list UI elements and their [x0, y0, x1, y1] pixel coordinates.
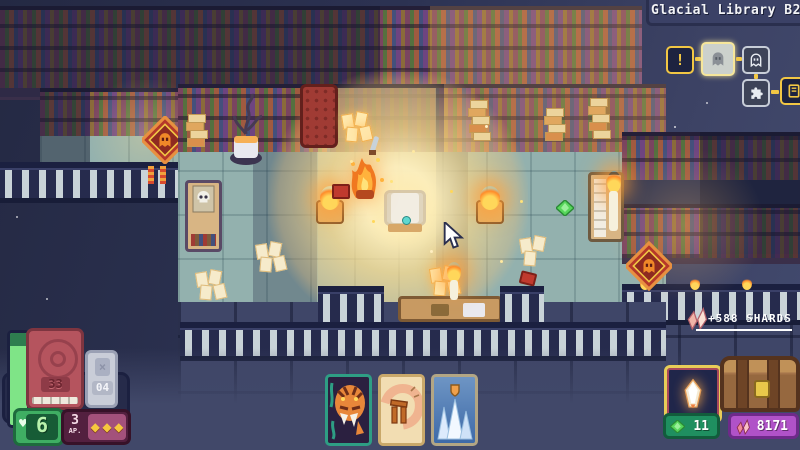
candle: [446, 270, 462, 300]
table-flip-card-art: [381, 377, 422, 443]
x-book-icon: ×: [95, 358, 110, 376]
gems-count: 11: [685, 419, 717, 434]
map-node-event[interactable]: !: [666, 46, 694, 74]
gems-badge: 11: [663, 413, 720, 439]
map-node-ghost[interactable]: [742, 46, 770, 74]
reward-shrine[interactable]: [384, 190, 426, 232]
railing-torch: [160, 166, 166, 184]
ghost-rug: [626, 240, 672, 292]
ghost-icon: [749, 53, 763, 67]
scattered-papers: [520, 236, 548, 258]
location-title: Glacial Library B2: [651, 3, 800, 18]
skull-cabinet: [185, 180, 222, 252]
ghost-icon: [710, 51, 726, 67]
scattered-papers: [196, 270, 228, 300]
book-pile: [468, 100, 488, 146]
red-cabinet: [300, 84, 338, 148]
ap-pip: ◆: [102, 420, 111, 434]
gem-icon: [670, 420, 685, 433]
mouse-cursor: [443, 222, 465, 254]
map-node-puzzle[interactable]: [742, 79, 770, 107]
ap-badge: 3 AP. ◆ ◆ ◆: [61, 409, 131, 445]
green-gem[interactable]: [556, 200, 574, 216]
lantern: [476, 190, 504, 224]
door-icon: [787, 84, 800, 98]
location-banner: Glacial Library B2: [646, 0, 800, 26]
map-node-door[interactable]: [780, 77, 800, 105]
tiger-card-art: [328, 377, 369, 443]
treasure-chest[interactable]: [720, 356, 800, 412]
shards-badge: 8171: [728, 413, 799, 439]
shards-count: 8171: [751, 419, 796, 434]
book-pile: [186, 114, 206, 148]
table-flip-card[interactable]: [378, 374, 425, 446]
ap-pip: ◆: [91, 420, 100, 434]
health-badge: ♥ 6: [13, 408, 64, 446]
dead-plant: [226, 92, 266, 168]
map-node-current[interactable]: [701, 42, 735, 76]
deck-emblem: [38, 339, 78, 379]
book-pile: [544, 108, 564, 144]
health-bar-missing: [10, 333, 27, 346]
scattered-papers: [256, 242, 288, 272]
game-screen: Glacial Library B2 ! +588 SHARDS 33 × 04…: [0, 0, 800, 450]
ap-pip: ◆: [114, 420, 123, 434]
shard-icon: [735, 418, 751, 435]
tiger-card[interactable]: [325, 374, 372, 446]
health-value: 6: [26, 414, 58, 440]
shard-gain-underline: [696, 329, 792, 331]
discard-pile[interactable]: × 04: [85, 350, 118, 408]
side-bookcase: [588, 172, 624, 242]
discard-count: 04: [92, 381, 113, 395]
glowing-shard-icon: [680, 378, 706, 410]
railing-torch: [148, 166, 154, 184]
draw-count: 33: [41, 377, 70, 392]
shard-gain-text: +588 SHARDS: [708, 312, 800, 325]
light-sparkles: [390, 180, 393, 183]
red-book: [332, 184, 350, 199]
deck-pages: [32, 397, 78, 404]
chest-clasp: [754, 380, 770, 398]
draw-pile[interactable]: 33: [26, 328, 84, 410]
ap-unit: AP.: [64, 427, 86, 435]
puzzle-icon: [749, 86, 763, 100]
shards-icon: [686, 304, 708, 332]
ice-wall-card-art: [434, 377, 475, 443]
map-connector: [771, 90, 779, 94]
ap-pips: ◆ ◆ ◆: [88, 414, 126, 440]
exclamation-icon: !: [675, 51, 684, 69]
ice-wall-card[interactable]: [431, 374, 478, 446]
book-pile: [588, 98, 608, 144]
ap-value: 3: [64, 414, 86, 427]
